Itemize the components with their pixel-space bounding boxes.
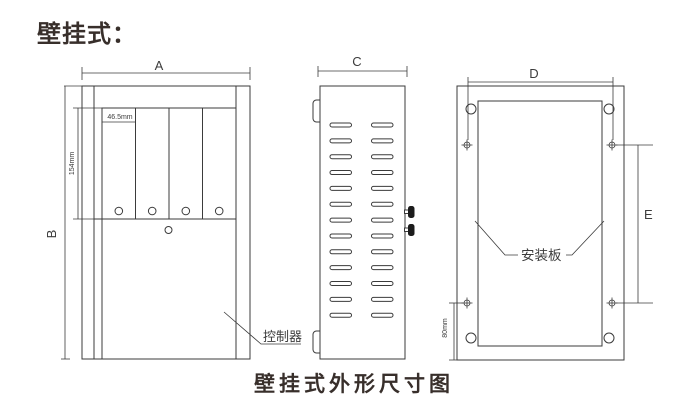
vent-slot [372, 282, 394, 286]
dim-e-label: E [644, 207, 653, 222]
vent-slot [372, 139, 394, 143]
mounting-plate-outline [478, 101, 602, 346]
vent-slot [372, 250, 394, 254]
mounting-plate-label: 安装板 [521, 248, 562, 263]
drawing-caption: 壁挂式外形尺寸图 [254, 372, 454, 396]
vent-slot [330, 155, 352, 159]
side-view: C [313, 54, 414, 359]
vent-slot [330, 139, 352, 143]
vent-slot [330, 266, 352, 270]
vent-slot [372, 155, 394, 159]
vent-slot [372, 234, 394, 238]
dim-b-label: B [44, 230, 59, 239]
vent-slot [372, 123, 394, 127]
vent-slot [372, 202, 394, 206]
vent-slot [330, 171, 352, 175]
vent-slot [372, 313, 394, 317]
vent-slot [330, 123, 352, 127]
dim-offset-label: 80mm [442, 318, 449, 338]
front-view: A B 46.5mm 154mm 控制器 [44, 58, 302, 359]
vent-slot [372, 266, 394, 270]
dim-d-label: D [529, 66, 538, 81]
wall-mount-dimension-drawing: 壁挂式： A B 46.5mm [0, 0, 700, 412]
vent-slot [330, 250, 352, 254]
vent-slot [330, 234, 352, 238]
dim-module-height-label: 154mm [69, 152, 76, 176]
latch-knob-top [405, 207, 415, 218]
vent-slot [330, 282, 352, 286]
vent-slot [372, 297, 394, 301]
controller-label: 控制器 [263, 329, 302, 344]
latch-knob-cap [409, 207, 415, 218]
back-view: D E 80mm 安装板 [442, 66, 653, 360]
front-enclosure-outline [82, 86, 250, 359]
dim-module-width-label: 46.5mm [107, 114, 132, 121]
vent-slot [372, 186, 394, 190]
vent-slot [372, 218, 394, 222]
drawing-canvas: 壁挂式： A B 46.5mm [0, 0, 700, 412]
dim-c-label: C [352, 54, 361, 69]
latch-knob-cap [409, 225, 415, 236]
vent-slot [330, 186, 352, 190]
dim-a-label: A [155, 58, 164, 73]
vent-slot [330, 313, 352, 317]
vent-slot [330, 218, 352, 222]
vent-slot [372, 171, 394, 175]
vent-slot [330, 202, 352, 206]
vent-slot [330, 297, 352, 301]
latch-knob-bottom [405, 225, 415, 236]
page-title: 壁挂式： [37, 20, 137, 48]
